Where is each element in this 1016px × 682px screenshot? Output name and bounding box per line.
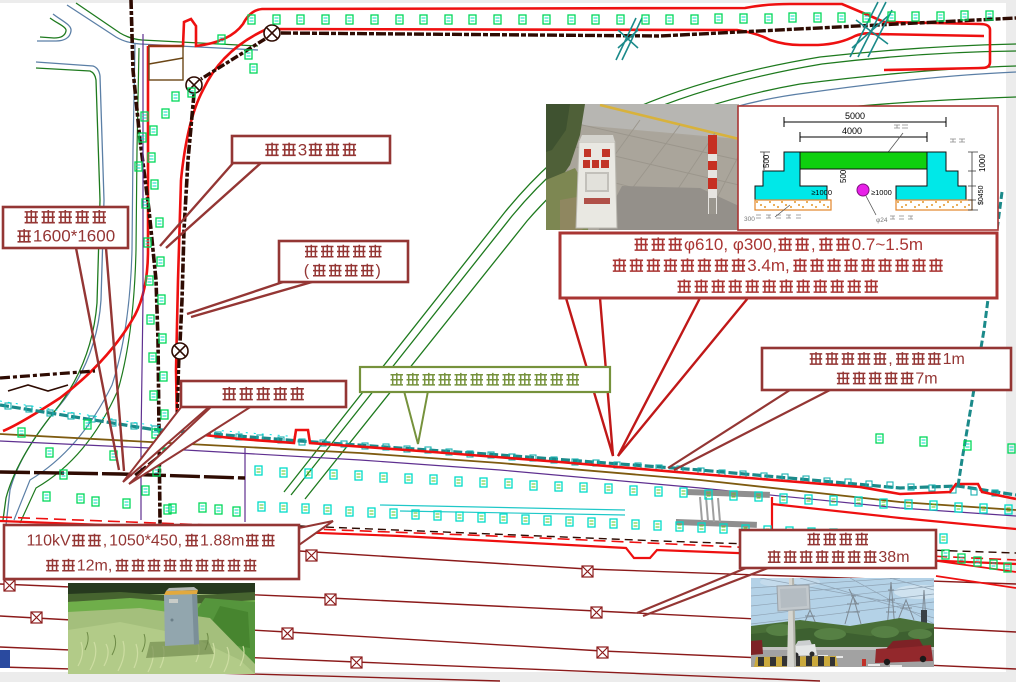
svg-text:φ610, φ300,: φ610, φ300, bbox=[684, 235, 777, 254]
svg-text:1000: 1000 bbox=[978, 154, 987, 172]
svg-text:5000: 5000 bbox=[845, 111, 865, 121]
svg-text:,: , bbox=[785, 256, 790, 275]
svg-text:3: 3 bbox=[298, 140, 307, 159]
svg-text:(: ( bbox=[304, 263, 310, 280]
svg-text:500: 500 bbox=[762, 154, 771, 168]
svg-text:): ) bbox=[376, 263, 381, 280]
svg-text:38m: 38m bbox=[878, 549, 909, 566]
svg-text:0.7~1.5m: 0.7~1.5m bbox=[852, 235, 923, 254]
svg-text:,: , bbox=[108, 558, 112, 575]
svg-text:7m: 7m bbox=[915, 371, 937, 388]
svg-text:4000: 4000 bbox=[842, 126, 862, 136]
svg-text:≥1000: ≥1000 bbox=[811, 188, 832, 197]
svg-text:$0450: $0450 bbox=[978, 185, 985, 205]
svg-text:φ24: φ24 bbox=[876, 217, 888, 224]
svg-text:1050*450: 1050*450 bbox=[109, 533, 178, 550]
svg-text:,: , bbox=[178, 533, 182, 550]
svg-text:1m: 1m bbox=[943, 351, 965, 368]
svg-text:12m: 12m bbox=[77, 558, 108, 575]
svg-text:≥1000: ≥1000 bbox=[871, 188, 892, 197]
svg-text:110kV: 110kV bbox=[27, 533, 72, 550]
svg-text:300: 300 bbox=[744, 216, 755, 223]
svg-text:,: , bbox=[888, 351, 892, 368]
svg-text:1.88m: 1.88m bbox=[200, 533, 244, 550]
svg-text:500: 500 bbox=[839, 169, 848, 183]
svg-text:,: , bbox=[811, 235, 816, 254]
svg-text:1600*1600: 1600*1600 bbox=[33, 227, 115, 246]
svg-text:3.4m: 3.4m bbox=[747, 256, 785, 275]
svg-text:,: , bbox=[103, 533, 107, 550]
